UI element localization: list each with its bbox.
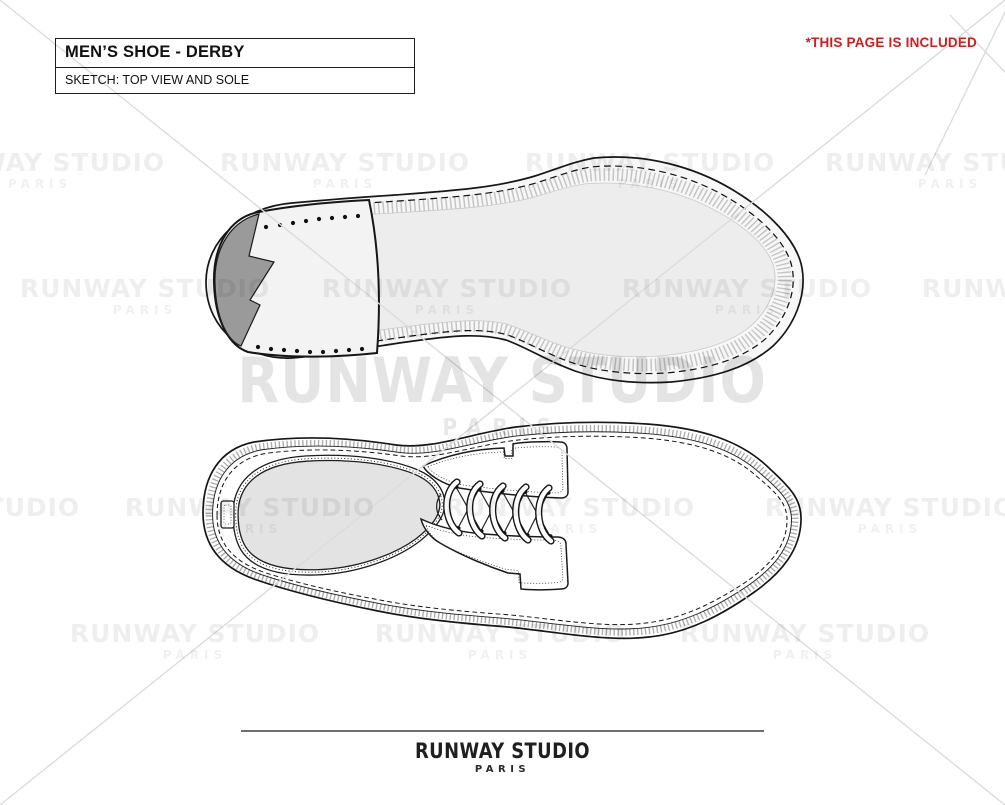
technical-drawings xyxy=(0,0,1005,805)
sole-view-illustration xyxy=(206,157,803,383)
page-title: MEN’S SHOE - DERBY xyxy=(55,38,415,68)
title-block: MEN’S SHOE - DERBY SKETCH: TOP VIEW AND … xyxy=(55,38,415,94)
page-subtitle: SKETCH: TOP VIEW AND SOLE xyxy=(55,68,415,94)
top-view-illustration xyxy=(203,422,801,638)
brand-city: PARIS xyxy=(0,764,1005,775)
included-notice: *THIS PAGE IS INCLUDED xyxy=(806,35,977,50)
tech-pack-page: RUNWAY STUDIO PARIS RUNWAY STUDIO PARIS … xyxy=(0,0,1005,805)
footer-divider xyxy=(241,730,764,732)
brand-logo: RUNWAY STUDIO xyxy=(75,739,929,763)
heel-tab xyxy=(221,501,234,528)
